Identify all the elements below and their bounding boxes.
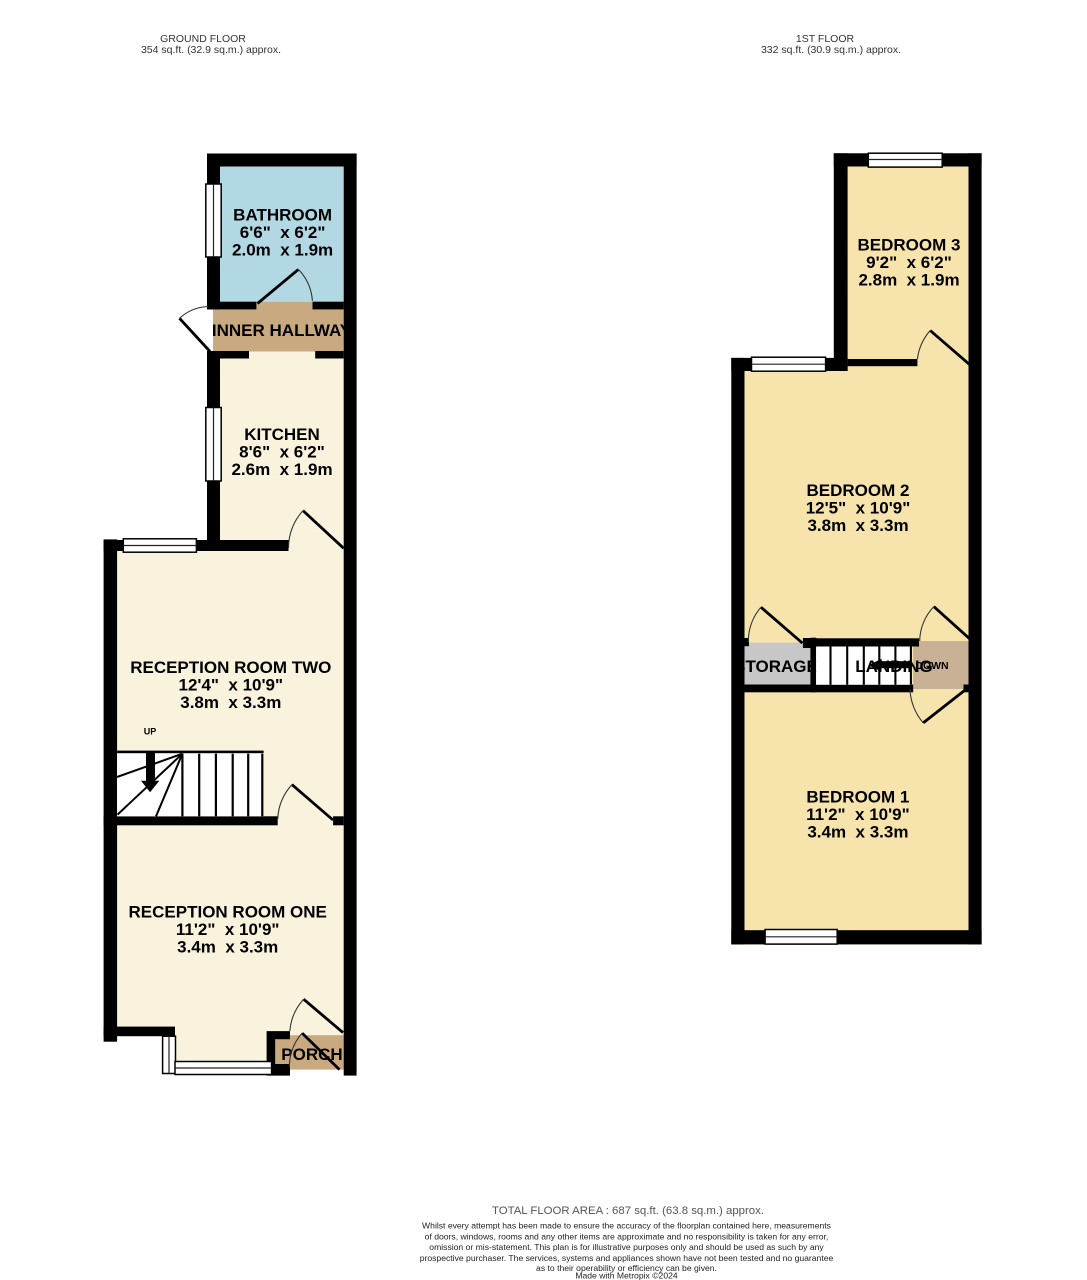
svg-text:omission or mis-statement. Thi: omission or mis-statement. This plan is …: [429, 1242, 824, 1252]
svg-text:INNER HALLWAY: INNER HALLWAY: [212, 321, 352, 340]
svg-text:3.4m x 3.3m: 3.4m x 3.3m: [177, 938, 278, 957]
svg-text:11'2" x 10'9": 11'2" x 10'9": [176, 920, 280, 939]
svg-text:332 sq.ft. (30.9 sq.m.) approx: 332 sq.ft. (30.9 sq.m.) approx.: [761, 44, 901, 56]
svg-text:9'2" x 6'2": 9'2" x 6'2": [866, 253, 952, 272]
svg-text:of doors, windows, rooms and a: of doors, windows, rooms and any other i…: [425, 1232, 829, 1242]
svg-text:STORAGE: STORAGE: [734, 657, 818, 676]
svg-text:3.4m x 3.3m: 3.4m x 3.3m: [807, 823, 908, 842]
svg-text:UP: UP: [144, 727, 157, 737]
svg-text:KITCHEN: KITCHEN: [244, 425, 320, 444]
svg-text:3.8m x 3.3m: 3.8m x 3.3m: [180, 693, 281, 712]
svg-text:12'4" x 10'9": 12'4" x 10'9": [179, 676, 284, 695]
svg-text:12'5" x 10'9": 12'5" x 10'9": [806, 499, 911, 518]
svg-text:2.0m x 1.9m: 2.0m x 1.9m: [232, 241, 333, 260]
svg-text:BEDROOM 3: BEDROOM 3: [858, 236, 961, 255]
svg-text:TOTAL FLOOR AREA : 687 sq.ft.: TOTAL FLOOR AREA : 687 sq.ft. (63.8 sq.m…: [492, 1205, 764, 1217]
svg-text:Made with Metropix ©2024: Made with Metropix ©2024: [575, 1271, 678, 1280]
svg-text:8'6" x 6'2": 8'6" x 6'2": [239, 443, 325, 462]
svg-text:BEDROOM 2: BEDROOM 2: [807, 481, 910, 500]
svg-text:DOWN: DOWN: [915, 660, 948, 672]
svg-text:prospective purchaser. The ser: prospective purchaser. The services, sys…: [420, 1253, 834, 1263]
svg-text:BATHROOM: BATHROOM: [233, 206, 332, 225]
svg-text:3.8m x 3.3m: 3.8m x 3.3m: [807, 516, 908, 535]
svg-text:6'6" x 6'2": 6'6" x 6'2": [240, 223, 326, 242]
svg-text:2.8m x 1.9m: 2.8m x 1.9m: [858, 271, 959, 290]
svg-text:Whilst every attempt has been: Whilst every attempt has been made to en…: [422, 1221, 831, 1231]
svg-text:RECEPTION ROOM TWO: RECEPTION ROOM TWO: [130, 658, 331, 677]
svg-text:RECEPTION ROOM ONE: RECEPTION ROOM ONE: [129, 903, 327, 922]
svg-text:354 sq.ft. (32.9 sq.m.) approx: 354 sq.ft. (32.9 sq.m.) approx.: [141, 44, 281, 56]
svg-text:2.6m x 1.9m: 2.6m x 1.9m: [231, 460, 332, 479]
svg-text:11'2" x 10'9": 11'2" x 10'9": [806, 805, 910, 824]
svg-text:BEDROOM 1: BEDROOM 1: [806, 788, 909, 807]
